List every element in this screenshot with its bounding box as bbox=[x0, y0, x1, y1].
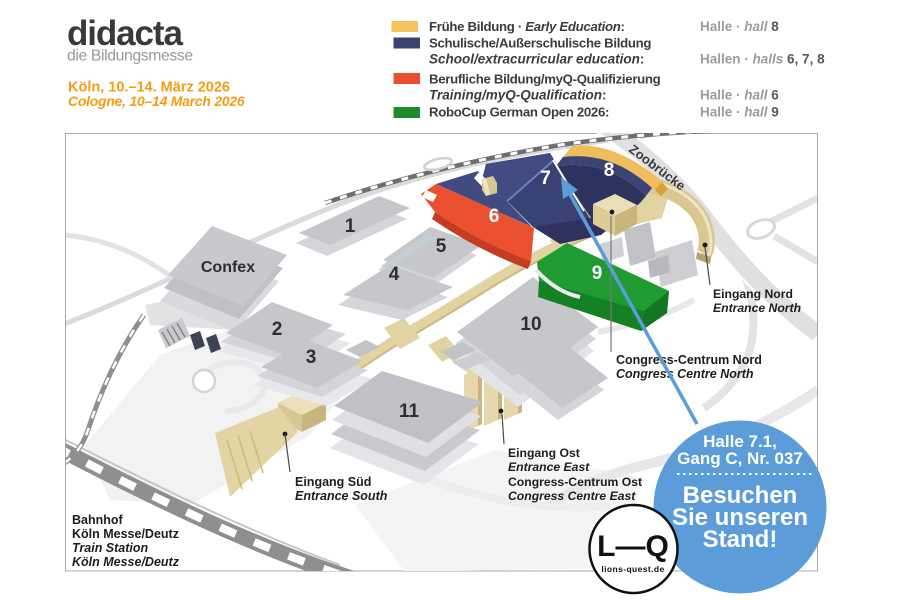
svg-text:7: 7 bbox=[540, 168, 551, 189]
svg-text:2: 2 bbox=[272, 319, 283, 340]
svg-text:Training/myQ-Qualification:: Training/myQ-Qualification: bbox=[429, 88, 607, 103]
svg-text:8: 8 bbox=[604, 160, 615, 181]
svg-text:10: 10 bbox=[520, 314, 541, 335]
svg-text:L—Q: L—Q bbox=[597, 530, 669, 563]
svg-text:Cologne, 10–14 March 2026: Cologne, 10–14 March 2026 bbox=[68, 93, 245, 109]
svg-text:Köln Messe/Deutz: Köln Messe/Deutz bbox=[72, 527, 179, 541]
svg-text:1: 1 bbox=[345, 216, 356, 237]
svg-text:Gang C, Nr. 037: Gang C, Nr. 037 bbox=[677, 449, 803, 468]
svg-text:5: 5 bbox=[436, 236, 447, 257]
svg-text:Entrance South: Entrance South bbox=[295, 489, 388, 503]
svg-text:lions-quest.de: lions-quest.de bbox=[601, 564, 664, 574]
svg-text:Halle · hall 6: Halle · hall 6 bbox=[700, 88, 779, 103]
svg-text:Schulische/Außerschulische Bil: Schulische/Außerschulische Bildung bbox=[429, 36, 651, 51]
svg-text:Bahnhof: Bahnhof bbox=[72, 513, 124, 527]
svg-text:RoboCup German Open 2026:: RoboCup German Open 2026: bbox=[429, 105, 609, 120]
svg-text:3: 3 bbox=[306, 347, 317, 368]
svg-text:Eingang Nord: Eingang Nord bbox=[713, 287, 793, 301]
svg-text:Eingang Süd: Eingang Süd bbox=[295, 475, 371, 489]
svg-text:Stand!: Stand! bbox=[703, 526, 778, 553]
svg-text:Köln Messe/Deutz: Köln Messe/Deutz bbox=[72, 555, 180, 569]
svg-text:Halle · hall 9: Halle · hall 9 bbox=[700, 105, 779, 120]
svg-text:Berufliche Bildung/myQ-Qualifi: Berufliche Bildung/myQ-Qualifizierung bbox=[429, 72, 661, 87]
svg-text:Congress-Centrum Ost: Congress-Centrum Ost bbox=[508, 475, 642, 489]
svg-text:School/extracurricular educati: School/extracurricular education: bbox=[429, 52, 644, 67]
svg-text:die Bildungsmesse: die Bildungsmesse bbox=[67, 48, 193, 65]
svg-text:Entrance North: Entrance North bbox=[713, 301, 801, 315]
svg-text:Frühe Bildung · Early Educatio: Frühe Bildung · Early Education: bbox=[429, 19, 625, 34]
svg-text:Congress-Centrum Nord: Congress-Centrum Nord bbox=[616, 353, 762, 367]
svg-text:Congress Centre North: Congress Centre North bbox=[616, 367, 754, 381]
svg-text:Entrance East: Entrance East bbox=[508, 460, 590, 474]
svg-text:6: 6 bbox=[489, 206, 500, 227]
svg-text:Confex: Confex bbox=[201, 259, 255, 276]
svg-text:4: 4 bbox=[389, 264, 400, 285]
svg-text:Eingang Ost: Eingang Ost bbox=[508, 446, 580, 460]
svg-text:9: 9 bbox=[592, 263, 603, 284]
svg-text:Train Station: Train Station bbox=[72, 541, 149, 555]
svg-text:11: 11 bbox=[399, 401, 420, 422]
svg-text:Halle · hall 8: Halle · hall 8 bbox=[700, 19, 779, 34]
svg-text:Congress Centre East: Congress Centre East bbox=[508, 489, 636, 503]
svg-text:Hallen · halls 6, 7, 8: Hallen · halls 6, 7, 8 bbox=[700, 52, 825, 67]
